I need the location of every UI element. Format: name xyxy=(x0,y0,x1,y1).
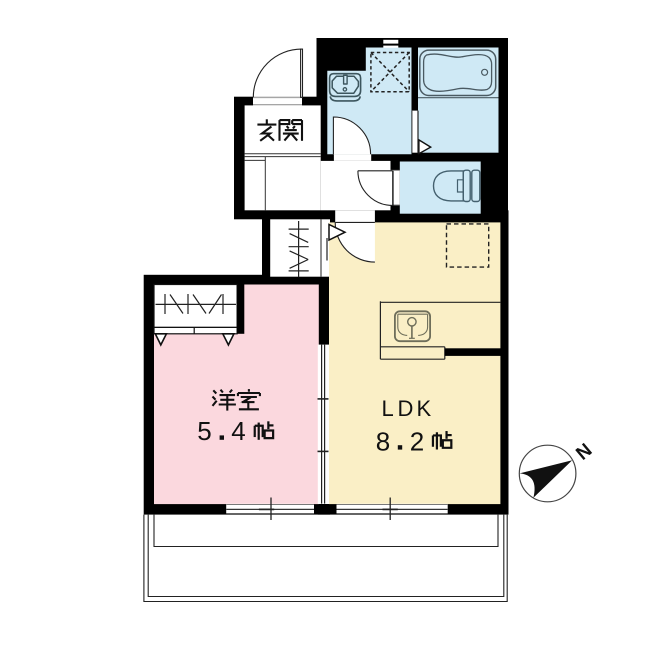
svg-text:5: 5 xyxy=(197,416,211,446)
svg-text:2: 2 xyxy=(410,426,424,456)
svg-text:LDK: LDK xyxy=(382,396,432,421)
svg-text:4: 4 xyxy=(231,416,245,446)
svg-text:8: 8 xyxy=(376,426,390,456)
